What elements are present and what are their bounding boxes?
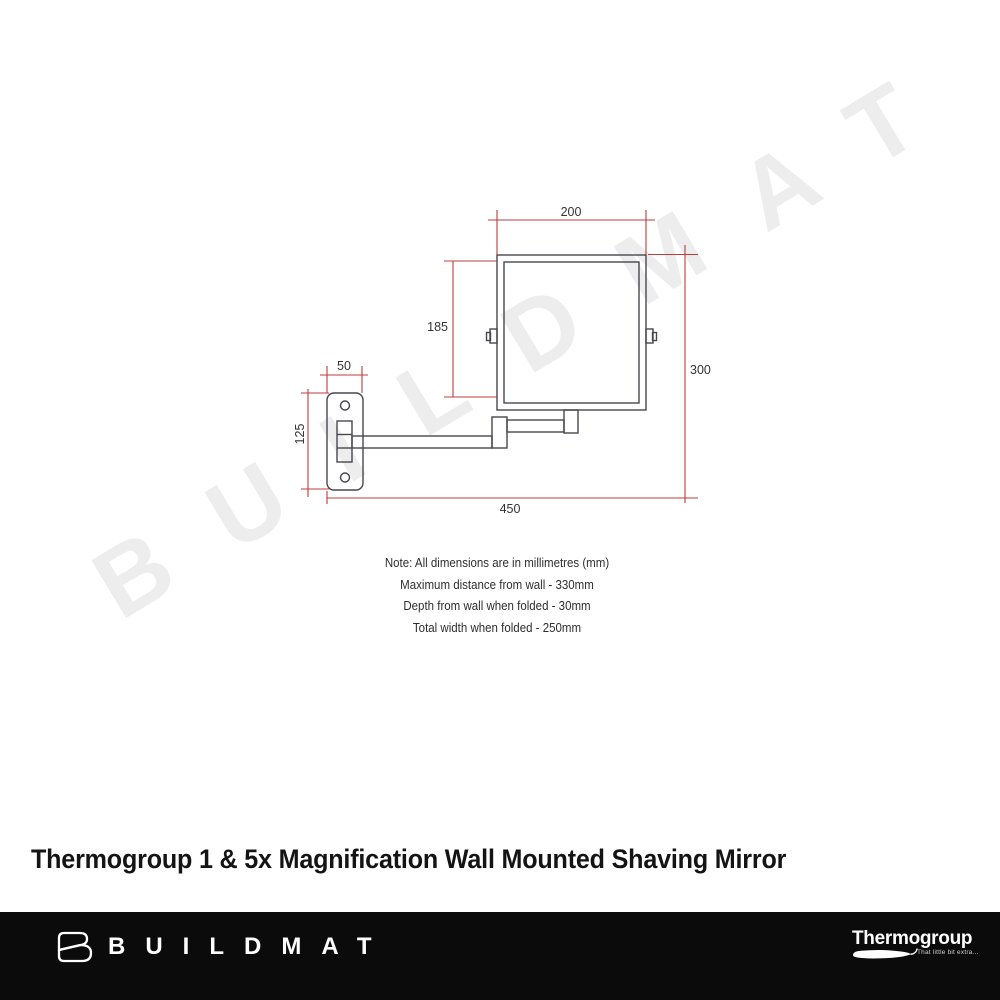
wall-plate (327, 393, 363, 490)
dimension-notes: Note: All dimensions are in millimetres … (313, 553, 681, 639)
mirror-pivot-left-knob (487, 333, 491, 341)
dim-mirror-height-label: 185 (427, 320, 448, 334)
mirror-assembly (487, 255, 657, 433)
mirror-stem (564, 410, 578, 433)
note-max-distance: Maximum distance from wall - 330mm (313, 575, 681, 597)
screw-hole-bottom (341, 473, 350, 482)
dim-overall-width-label: 450 (500, 502, 521, 516)
chilli-pepper-icon (851, 947, 919, 961)
hinge-knuckle (337, 421, 352, 462)
product-dimension-page: BUILDMAT (0, 0, 1000, 1000)
mirror-pivot-right-knob (653, 333, 657, 341)
dim-overall-height-label: 300 (690, 363, 711, 377)
arm-upper-bar (507, 420, 564, 432)
buildmat-wordmark: BUILDMAT (108, 933, 392, 961)
dim-mirror-width-label: 200 (561, 205, 582, 219)
arm-elbow-joint (492, 417, 507, 448)
thermogroup-tagline: That little bit extra... (917, 949, 979, 956)
buildmat-logo (52, 927, 96, 967)
note-folded-width: Total width when folded - 250mm (313, 618, 681, 640)
dim-plate-height-label: 125 (293, 424, 307, 445)
arm-lower-bar (352, 436, 492, 448)
buildmat-b-icon (52, 927, 96, 967)
thermogroup-logo: Thermogroup That little bit extra... (852, 928, 982, 950)
product-title: Thermogroup 1 & 5x Magnification Wall Mo… (31, 844, 786, 875)
screw-hole-top (341, 401, 350, 410)
dimension-lines: 200 185 300 50 125 450 (293, 205, 711, 516)
note-units: Note: All dimensions are in millimetres … (313, 553, 681, 575)
mirror-outer-frame (497, 255, 646, 410)
arm-assembly (327, 393, 564, 490)
mirror-glass (504, 262, 639, 403)
dim-plate-width-label: 50 (337, 359, 351, 373)
note-folded-depth: Depth from wall when folded - 30mm (313, 596, 681, 618)
